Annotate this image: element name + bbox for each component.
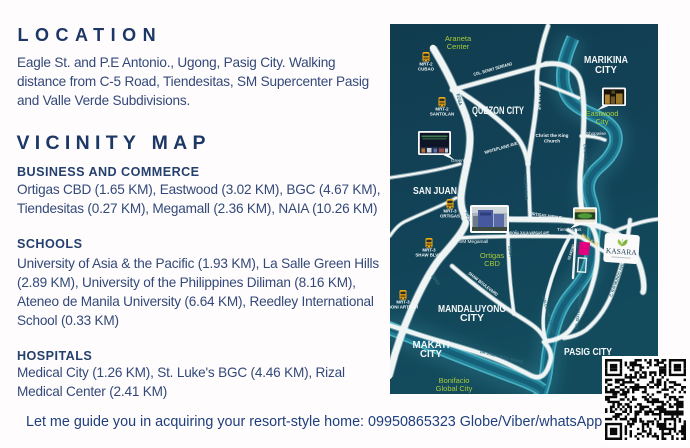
svg-text:AURORA BLVD: AURORA BLVD [523, 174, 529, 200]
svg-text:SAN JUAN: SAN JUAN [413, 185, 457, 197]
svg-text:Christ the King: Christ the King [536, 133, 569, 138]
svg-text:Church: Church [544, 139, 560, 144]
svg-text:Shopwise: Shopwise [586, 131, 606, 136]
svg-text:SANTOLAN: SANTOLAN [430, 112, 454, 117]
svg-text:BONI ARTHUR: BONI ARTHUR [390, 305, 419, 310]
svg-text:CITY: CITY [420, 348, 442, 360]
svg-text:CUBAO: CUBAO [418, 67, 435, 72]
svg-text:Center: Center [447, 42, 470, 51]
svg-text:SM Megamall: SM Megamall [459, 239, 488, 245]
svg-text:Greenhills: Greenhills [451, 158, 472, 163]
svg-text:Global City: Global City [436, 384, 473, 393]
svg-text:KATIPUNAN AVE: KATIPUNAN AVE [537, 82, 542, 110]
svg-text:EDSA: EDSA [508, 246, 514, 258]
svg-text:CITY: CITY [460, 312, 484, 324]
svg-text:ORTIGAS: ORTIGAS [440, 214, 460, 219]
svg-text:SHAW BLVD.: SHAW BLVD. [415, 253, 442, 258]
svg-text:DOÑA JULIA VARGAS AVE.: DOÑA JULIA VARGAS AVE. [510, 231, 550, 236]
svg-text:CBD: CBD [484, 259, 500, 268]
svg-text:City: City [596, 117, 609, 126]
svg-text:Tiendesitas: Tiendesitas [557, 227, 582, 233]
svg-text:CITY: CITY [595, 64, 617, 76]
svg-text:QUEZON CITY: QUEZON CITY [472, 105, 524, 117]
